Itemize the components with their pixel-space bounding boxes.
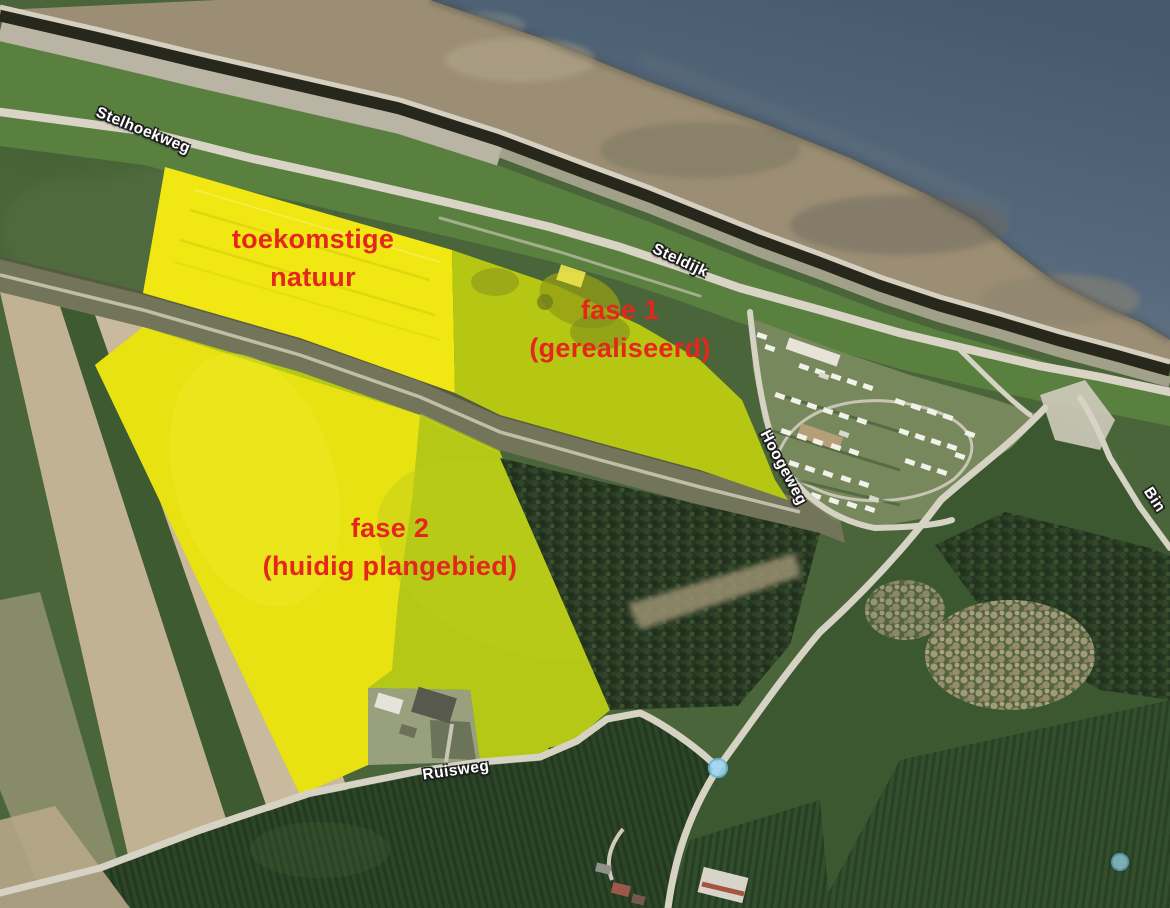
label-line: natuur (232, 258, 394, 296)
poi-dot-west[interactable] (709, 759, 727, 777)
label-fase-1: fase 1 (gerealiseerd) (529, 291, 710, 367)
label-line: (huidig plangebied) (263, 547, 518, 585)
label-toekomstige-natuur: toekomstige natuur (232, 220, 394, 296)
farmyard-cutout (368, 687, 480, 765)
label-line: fase 1 (529, 291, 710, 329)
label-line: toekomstige (232, 220, 394, 258)
label-fase-2: fase 2 (huidig plangebied) (263, 509, 518, 585)
poi-dot-east[interactable] (1112, 854, 1128, 870)
satellite-map[interactable]: toekomstige natuur fase 1 (gerealiseerd)… (0, 0, 1170, 908)
label-line: fase 2 (263, 509, 518, 547)
label-line: (gerealiseerd) (529, 329, 710, 367)
